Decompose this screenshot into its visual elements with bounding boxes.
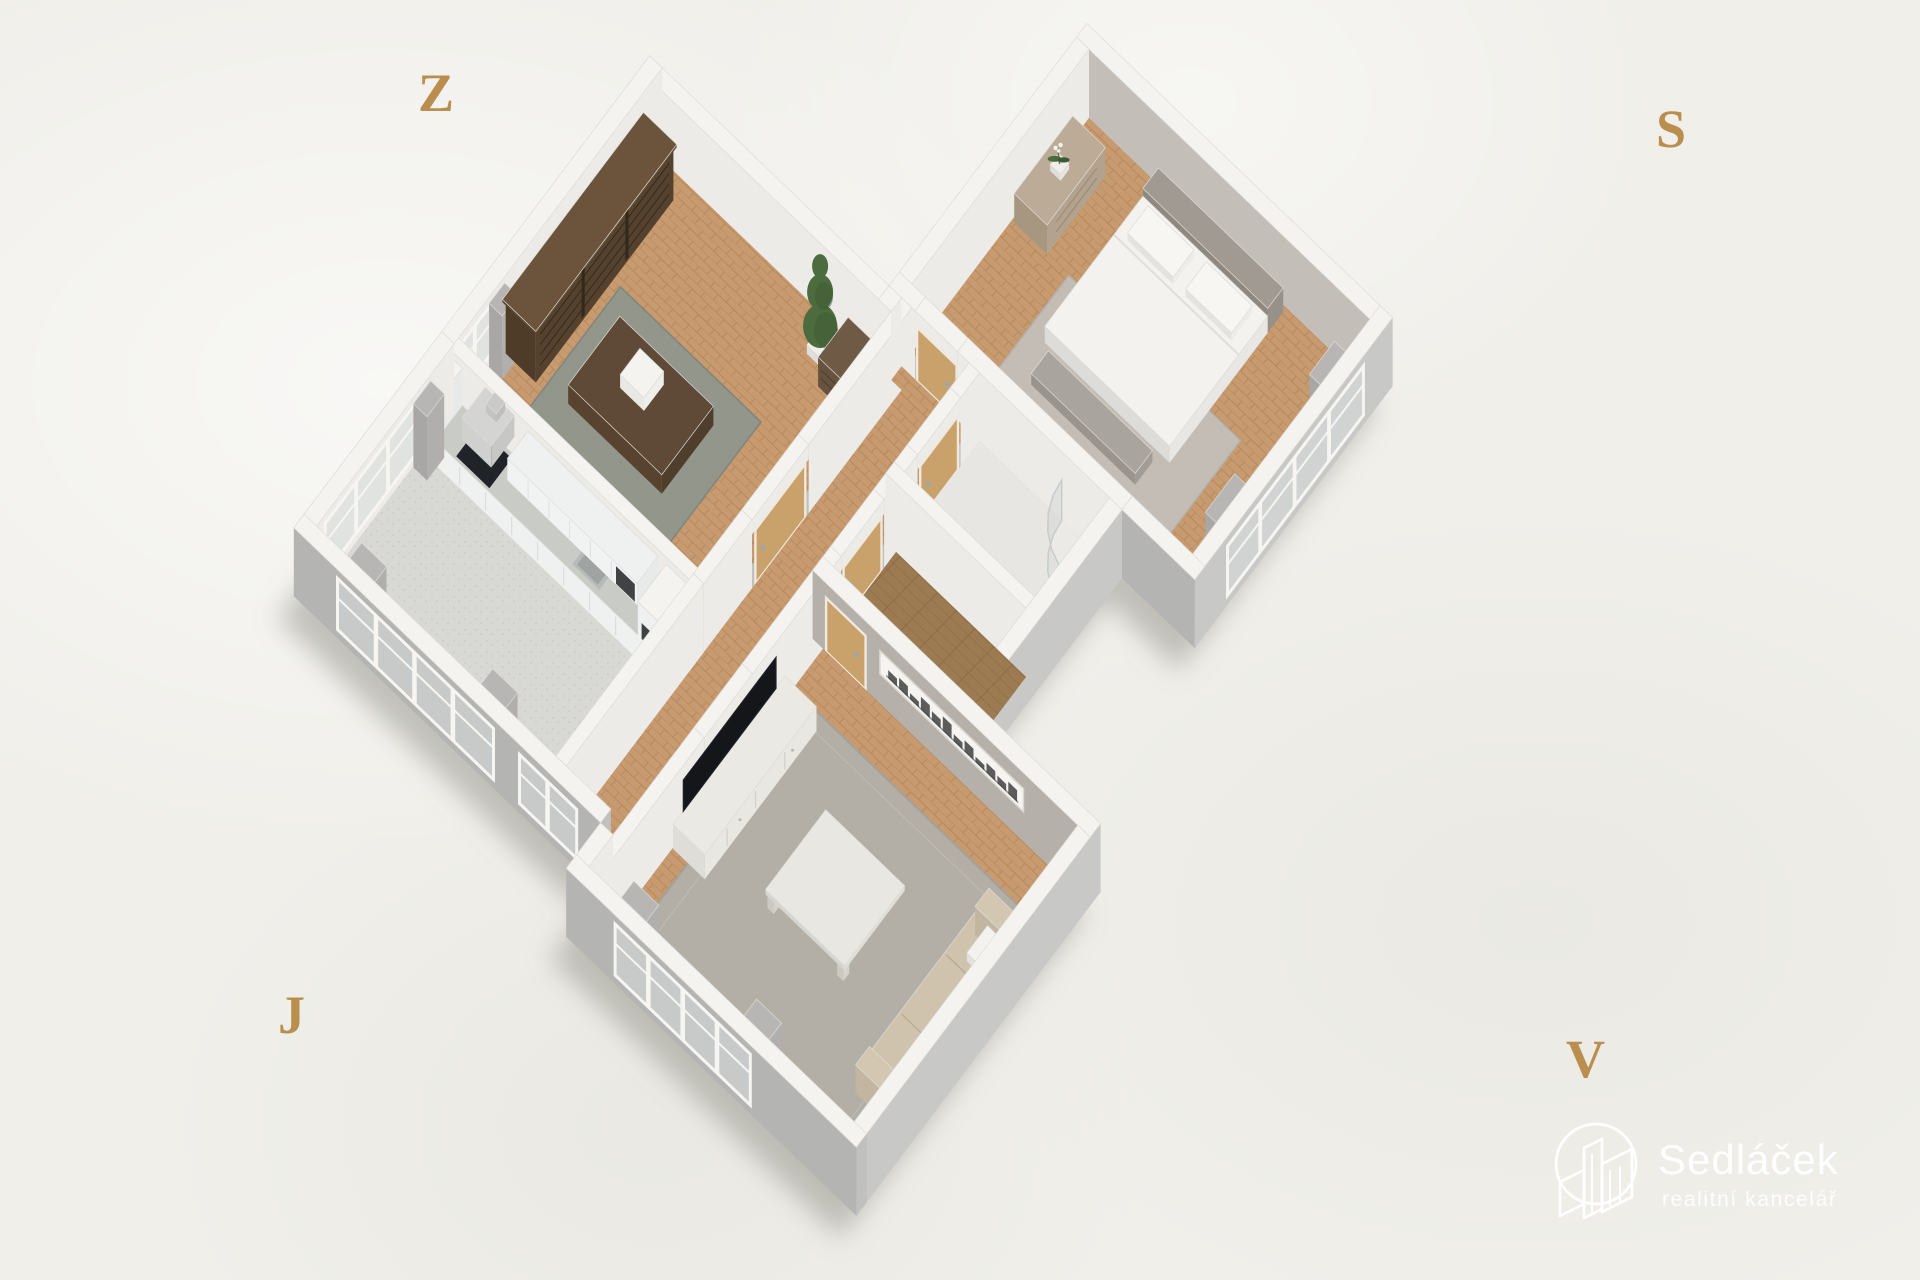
floorplan-stage: Z S J V Sedláček realitní kancelář bbox=[0, 0, 1920, 1280]
brand-watermark: Sedláček realitní kancelář bbox=[1540, 1112, 1910, 1262]
compass-north-label: S bbox=[1656, 102, 1686, 156]
apartment-3d-render bbox=[0, 0, 1920, 1280]
compass-west-label: Z bbox=[418, 66, 454, 120]
compass-south-label: J bbox=[278, 988, 305, 1042]
brand-name: Sedláček bbox=[1658, 1136, 1839, 1184]
buildings-in-circle-icon bbox=[1540, 1116, 1652, 1240]
compass-east-label: V bbox=[1566, 1032, 1605, 1086]
brand-tagline: realitní kancelář bbox=[1662, 1188, 1837, 1212]
